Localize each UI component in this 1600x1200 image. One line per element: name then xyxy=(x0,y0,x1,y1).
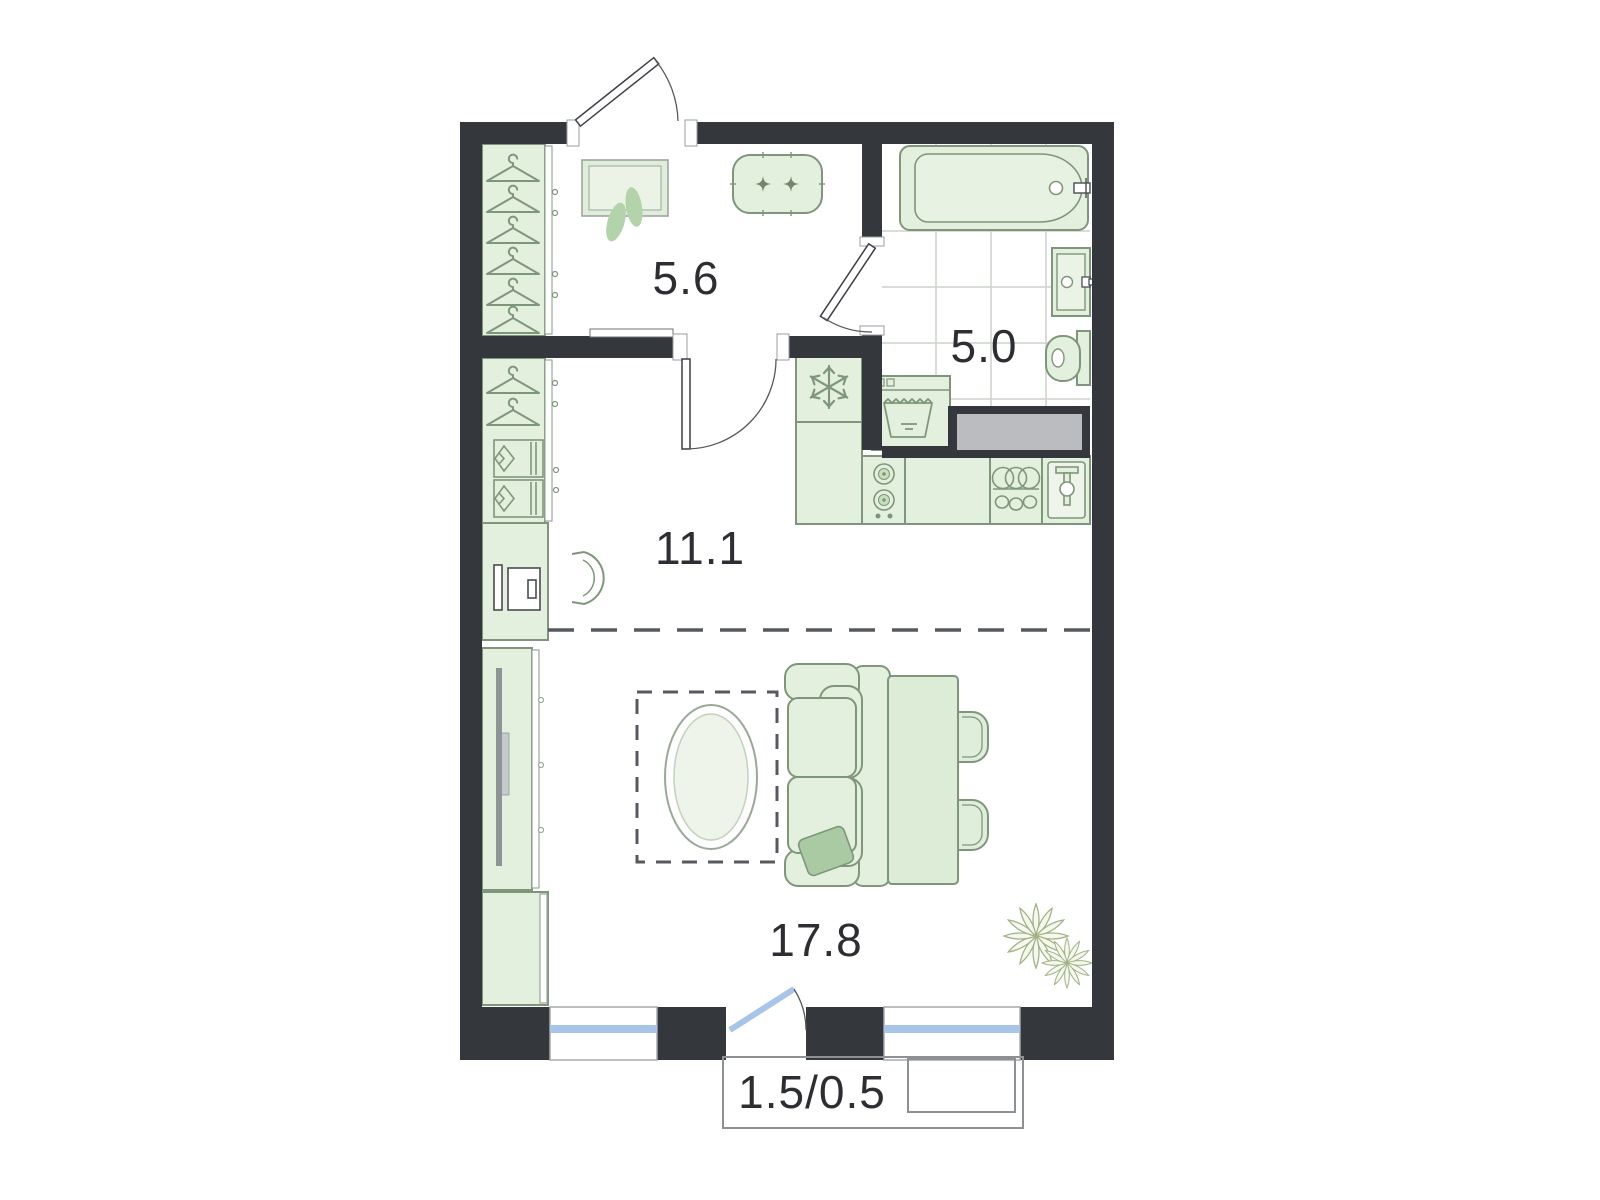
wall-bathroom-south xyxy=(882,446,948,458)
bathroom-door xyxy=(820,244,875,332)
balcony-area-label: 1.5/0.5 xyxy=(738,1066,886,1118)
counter-dishes-module xyxy=(990,456,1042,524)
window-1 xyxy=(550,1007,657,1060)
entry-door-jamb xyxy=(567,120,579,146)
interior-door xyxy=(682,359,776,449)
washing-machine xyxy=(872,376,950,450)
hallway xyxy=(482,144,825,336)
bathtub xyxy=(900,146,1090,230)
floor-plan: 5.6 5.0 11.1 17.8 1.5/0.5 xyxy=(0,0,1600,1200)
dining-chair xyxy=(958,800,988,850)
windows xyxy=(550,989,1020,1060)
wall-bottom-corner-left xyxy=(460,1007,550,1060)
low-cabinet xyxy=(482,892,548,1005)
entry-door-jamb xyxy=(685,120,697,146)
sliding-panel xyxy=(590,329,673,337)
wardrobe-hooks xyxy=(553,190,558,298)
sofa xyxy=(785,664,890,886)
hall-wardrobe-front-edge xyxy=(545,146,552,334)
interior-door-jamb xyxy=(777,334,789,360)
kitchen-sink xyxy=(1048,462,1085,518)
wall-hall-divider-left xyxy=(460,336,673,358)
low-cabinet-front-edge xyxy=(540,894,547,1003)
tv-console-front-edge xyxy=(532,650,539,888)
wall-top-right xyxy=(697,122,1114,144)
pouf xyxy=(730,152,825,216)
wall-top-left xyxy=(460,122,567,144)
bathroom-area-label: 5.0 xyxy=(951,320,1018,372)
wall-right xyxy=(1092,122,1114,1060)
dining-table xyxy=(888,676,958,884)
window-2 xyxy=(884,1007,1020,1060)
kitchen-zone-left xyxy=(482,358,604,1005)
dining-chair xyxy=(958,712,988,762)
oval-rug xyxy=(665,705,757,849)
balcony-door-opening xyxy=(726,1007,806,1060)
burner-icon xyxy=(874,490,894,510)
kitchen-counter xyxy=(905,456,990,524)
ventilation-duct xyxy=(948,406,1090,458)
hallway-area-label: 5.6 xyxy=(653,252,720,304)
computer-icon xyxy=(494,565,540,610)
living-area-label: 17.8 xyxy=(769,914,863,966)
wall-bathroom-west-lower xyxy=(862,335,882,450)
kitchen-area-label: 11.1 xyxy=(655,522,745,574)
burner-icon xyxy=(874,464,894,484)
entry-door xyxy=(576,58,678,127)
wall-bottom-pier-2 xyxy=(806,1007,884,1060)
stove-knob xyxy=(888,514,893,519)
interior-door-jamb xyxy=(673,334,687,360)
floor-plan-page: 5.6 5.0 11.1 17.8 1.5/0.5 xyxy=(0,0,1600,1200)
bathtub-drain xyxy=(1050,182,1063,195)
balcony-box xyxy=(908,1059,1015,1112)
stove-knob xyxy=(876,514,881,519)
wall-bottom-pier-1 xyxy=(657,1007,726,1060)
tv-icon xyxy=(496,668,502,866)
wall-bathroom-west-upper xyxy=(862,144,882,237)
plant-icon xyxy=(1004,904,1092,988)
wall-bottom-corner-right xyxy=(1020,1007,1114,1060)
wardrobe-2-hooks xyxy=(553,381,559,493)
bathroom-door-jamb xyxy=(860,237,884,246)
bathroom-sink xyxy=(1052,248,1094,316)
kitchen-cabinet-tall xyxy=(796,422,862,524)
bathroom-door-jamb xyxy=(860,326,884,335)
wardrobe-2-front-edge xyxy=(545,360,552,521)
toilet xyxy=(1046,331,1090,385)
wall-left xyxy=(460,122,482,1060)
desk-chair xyxy=(572,552,604,604)
